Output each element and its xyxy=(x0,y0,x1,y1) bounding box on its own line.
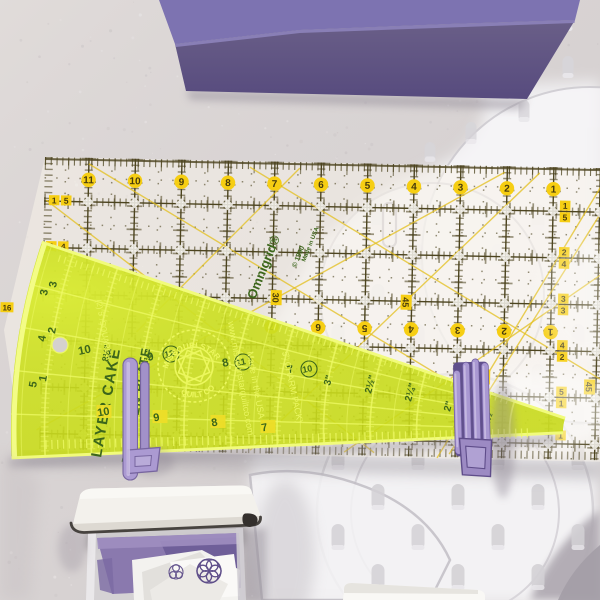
svg-text:4: 4 xyxy=(411,182,417,193)
svg-text:3: 3 xyxy=(458,183,464,194)
svg-text:9: 9 xyxy=(179,177,185,188)
svg-text:1: 1 xyxy=(551,185,557,196)
svg-text:5: 5 xyxy=(64,196,69,206)
svg-text:5: 5 xyxy=(365,181,371,192)
svg-text:16: 16 xyxy=(2,303,12,312)
svg-text:30: 30 xyxy=(270,293,280,303)
svg-text:5: 5 xyxy=(361,322,367,333)
svg-text:10: 10 xyxy=(96,406,110,420)
svg-text:11: 11 xyxy=(83,175,94,186)
svg-text:4: 4 xyxy=(408,323,414,334)
svg-text:6: 6 xyxy=(315,321,321,332)
svg-text:8: 8 xyxy=(225,178,231,189)
svg-text:2: 2 xyxy=(501,325,507,336)
svg-text:2: 2 xyxy=(560,352,565,362)
svg-text:5: 5 xyxy=(562,212,567,222)
svg-text:3: 3 xyxy=(454,324,460,335)
svg-text:6: 6 xyxy=(318,180,324,191)
svg-text:1: 1 xyxy=(52,195,57,205)
svg-text:7: 7 xyxy=(272,179,278,190)
svg-text:2: 2 xyxy=(504,184,510,195)
svg-text:10: 10 xyxy=(129,176,141,187)
svg-text:45: 45 xyxy=(400,297,410,307)
svg-text:1: 1 xyxy=(563,201,568,211)
svg-text:10: 10 xyxy=(301,363,313,375)
